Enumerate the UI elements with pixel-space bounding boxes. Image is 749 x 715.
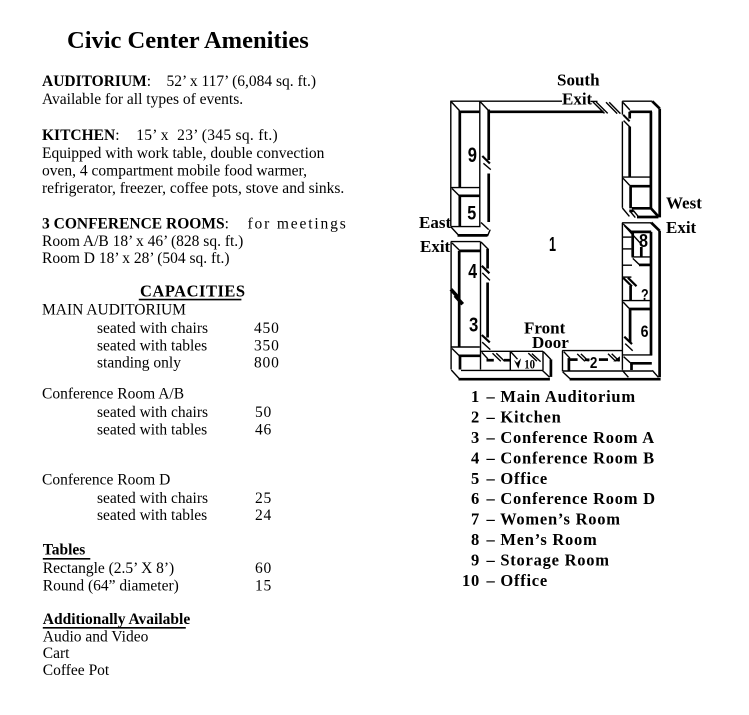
svg-text:– Kitchen: – Kitchen xyxy=(486,408,562,427)
svg-text:10: 10 xyxy=(462,571,480,590)
svg-text:Room D 18’ x 28’ (504 sq. ft.): Room D 18’ x 28’ (504 sq. ft.) xyxy=(42,250,230,267)
svg-text:15’ x 23’ (345 sq. ft.): 15’ x 23’ (345 sq. ft.) xyxy=(136,127,278,144)
svg-text:Exit: Exit xyxy=(562,90,593,109)
svg-text:– Men’s Room: – Men’s Room xyxy=(486,530,598,549)
svg-text:50: 50 xyxy=(255,404,272,421)
svg-text:Round (64” diameter): Round (64” diameter) xyxy=(43,577,179,594)
svg-text:– Main Auditorium: – Main Auditorium xyxy=(486,387,636,406)
svg-text:– Women’s Room: – Women’s Room xyxy=(486,510,621,529)
svg-text:4: 4 xyxy=(471,448,480,467)
svg-text:KITCHEN:: KITCHEN: xyxy=(42,127,120,144)
svg-text:15: 15 xyxy=(255,577,272,594)
svg-text:52’ x 117’ (6,084 sq. ft.): 52’ x 117’ (6,084 sq. ft.) xyxy=(167,73,317,90)
svg-text:8: 8 xyxy=(471,530,480,549)
svg-text:10: 10 xyxy=(524,358,535,372)
svg-text:Conference Room A/B: Conference Room A/B xyxy=(42,386,184,403)
svg-text:46: 46 xyxy=(255,421,272,438)
svg-text:– Conference Room A: – Conference Room A xyxy=(486,428,655,447)
svg-text:Conference Room D: Conference Room D xyxy=(42,471,170,488)
svg-text:3 CONFERENCE ROOMS:: 3 CONFERENCE ROOMS: xyxy=(42,216,229,233)
svg-text:Door: Door xyxy=(532,333,569,352)
svg-text:2: 2 xyxy=(471,408,480,427)
svg-text:Rectangle (2.5’ X 8’): Rectangle (2.5’ X 8’) xyxy=(43,560,174,577)
svg-text:– Storage Room: – Storage Room xyxy=(486,550,610,569)
svg-text:Coffee Pot: Coffee Pot xyxy=(43,662,110,679)
svg-text:seated with tables: seated with tables xyxy=(97,421,207,438)
svg-text:3: 3 xyxy=(471,428,480,447)
svg-text:8: 8 xyxy=(639,231,648,251)
svg-text:9: 9 xyxy=(468,144,477,167)
svg-text:1: 1 xyxy=(471,387,480,406)
svg-text:– Conference Room B: – Conference Room B xyxy=(486,448,655,467)
svg-text:?: ? xyxy=(641,287,649,304)
svg-text:South: South xyxy=(557,71,600,90)
svg-text:standing only: standing only xyxy=(97,355,181,372)
svg-text:refrigerator, freezer, coffee: refrigerator, freezer, coffee pots, stov… xyxy=(42,180,344,197)
svg-text:oven, 4 compartment mobile foo: oven, 4 compartment mobile food warmer, xyxy=(42,163,307,180)
svg-text:5: 5 xyxy=(467,204,476,225)
svg-text:2: 2 xyxy=(590,355,598,372)
svg-text:Available for all types of eve: Available for all types of events. xyxy=(42,91,243,108)
svg-text:seated with chairs: seated with chairs xyxy=(97,404,208,421)
svg-text:1: 1 xyxy=(549,234,556,256)
svg-text:West: West xyxy=(666,194,702,213)
svg-text:for meetings: for meetings xyxy=(248,216,348,233)
svg-text:800: 800 xyxy=(254,355,280,372)
svg-text:7: 7 xyxy=(471,510,480,529)
svg-text:AUDITORIUM:: AUDITORIUM: xyxy=(42,73,151,90)
svg-text:Equipped with work table, doub: Equipped with work table, double convect… xyxy=(42,145,325,162)
svg-text:seated with tables: seated with tables xyxy=(97,337,207,354)
svg-text:3: 3 xyxy=(469,315,478,337)
svg-text:– Conference Room D: – Conference Room D xyxy=(486,489,656,508)
svg-text:Civic Center Amenities: Civic Center Amenities xyxy=(67,27,309,54)
svg-text:– Office: – Office xyxy=(486,469,548,488)
svg-text:6: 6 xyxy=(641,322,649,341)
svg-text:Tables: Tables xyxy=(43,542,86,559)
svg-text:6: 6 xyxy=(471,489,480,508)
svg-text:MAIN AUDITORIUM: MAIN AUDITORIUM xyxy=(42,302,186,319)
svg-text:Exit: Exit xyxy=(666,218,697,237)
svg-text:450: 450 xyxy=(254,320,280,337)
svg-text:East: East xyxy=(419,213,451,232)
svg-text:seated with tables: seated with tables xyxy=(97,507,207,524)
svg-text:Audio and Video: Audio and Video xyxy=(43,628,149,645)
svg-text:Cart: Cart xyxy=(43,645,70,662)
svg-text:4: 4 xyxy=(468,261,477,283)
svg-text:60: 60 xyxy=(255,560,272,577)
svg-text:24: 24 xyxy=(255,507,272,524)
svg-text:5: 5 xyxy=(471,469,480,488)
svg-text:9: 9 xyxy=(471,550,480,569)
svg-text:seated with chairs: seated with chairs xyxy=(97,320,208,337)
svg-text:seated with chairs: seated with chairs xyxy=(97,490,208,507)
svg-text:Exit: Exit xyxy=(420,237,451,256)
svg-text:350: 350 xyxy=(254,337,280,354)
svg-text:Additionally Available: Additionally Available xyxy=(43,611,191,628)
svg-text:Room A/B 18’ x 46’ (828 sq. ft: Room A/B 18’ x 46’ (828 sq. ft.) xyxy=(42,233,243,250)
svg-text:CAPACITIES: CAPACITIES xyxy=(140,282,246,301)
svg-text:– Office: – Office xyxy=(486,571,548,590)
svg-text:25: 25 xyxy=(255,490,272,507)
